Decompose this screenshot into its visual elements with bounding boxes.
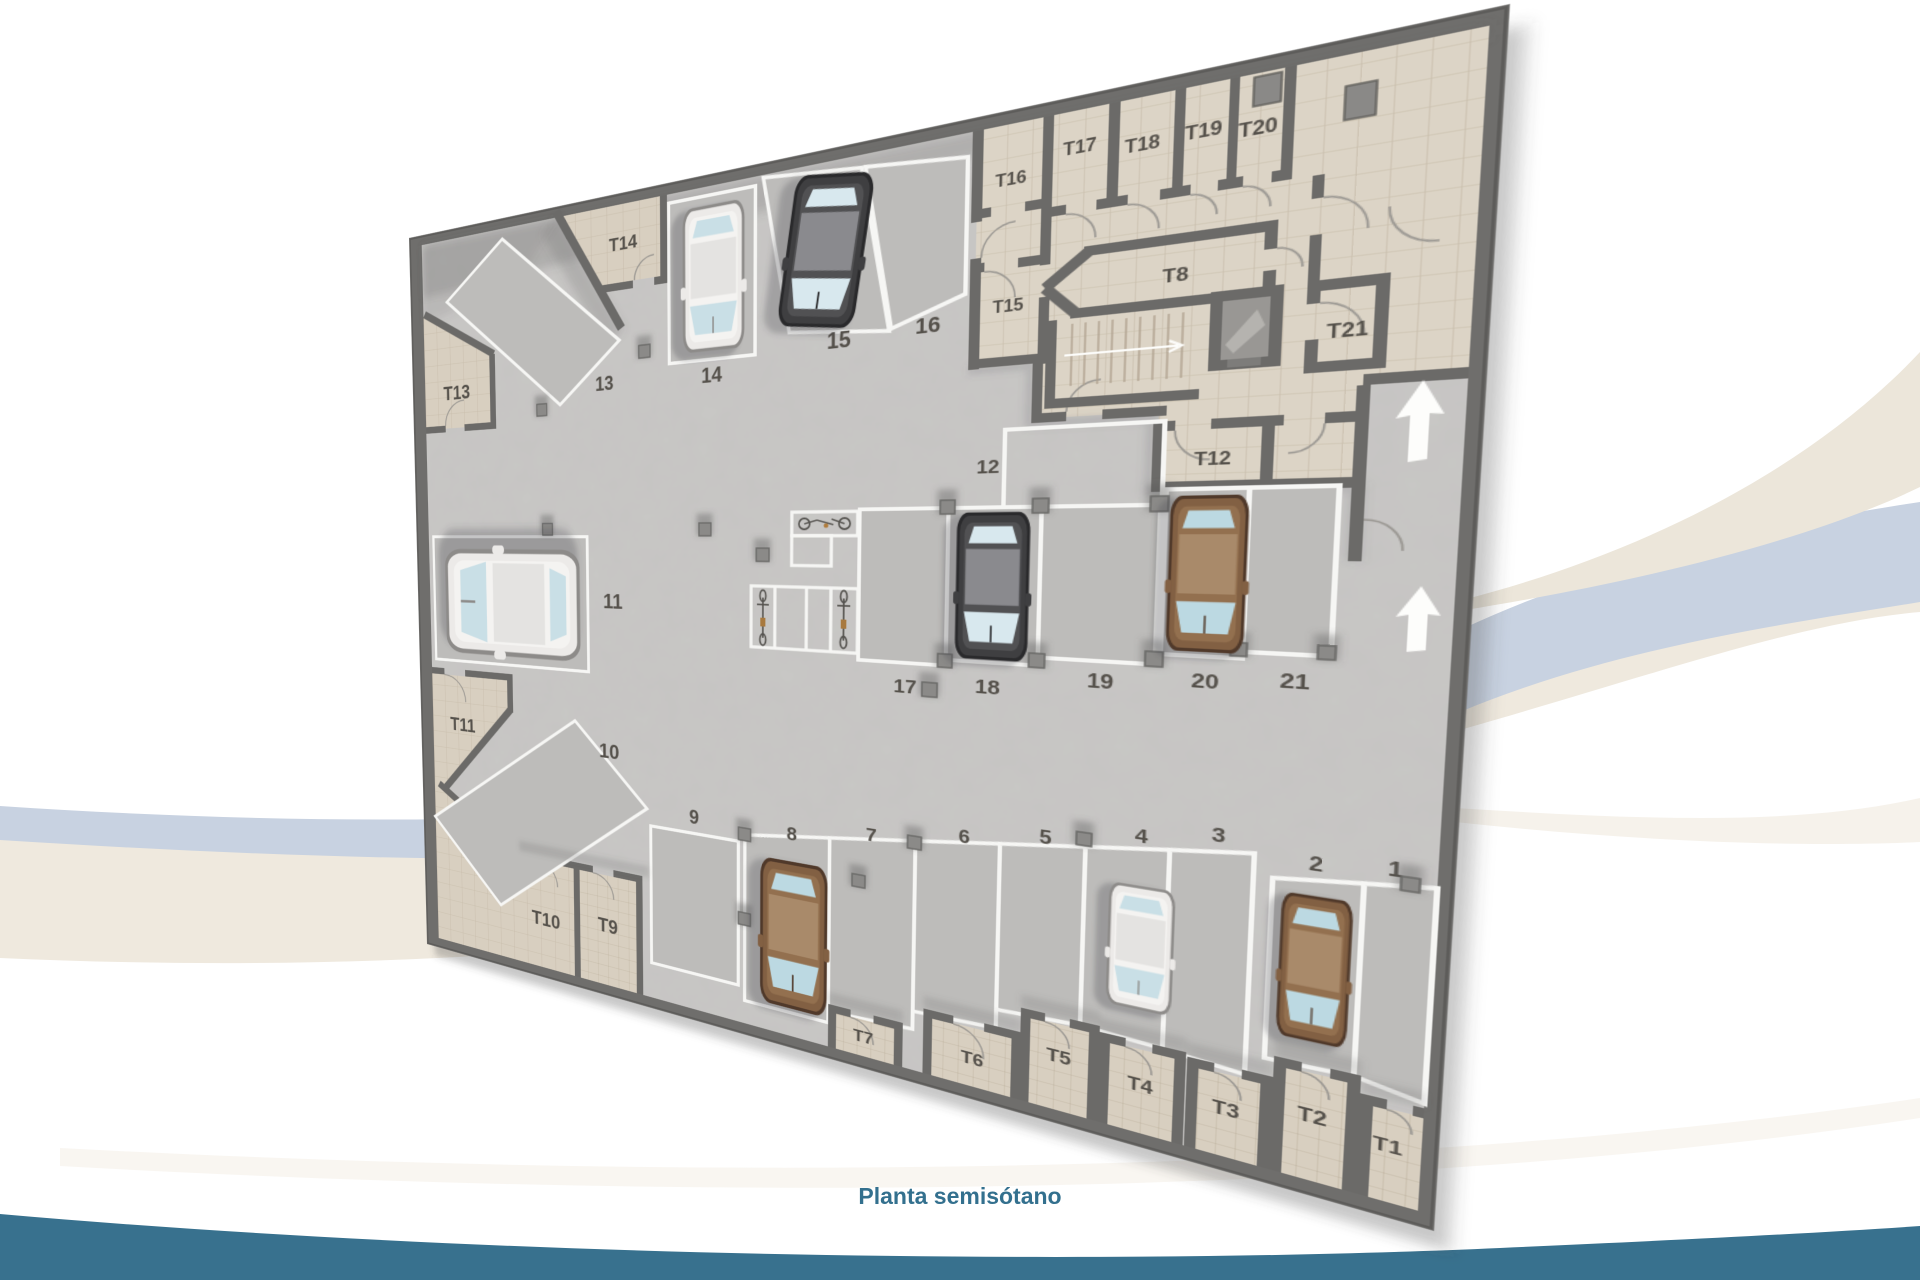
svg-text:5: 5 xyxy=(1039,826,1052,850)
svg-text:19: 19 xyxy=(1086,669,1113,694)
svg-text:T11: T11 xyxy=(450,714,475,738)
svg-text:8: 8 xyxy=(787,822,798,846)
svg-text:18: 18 xyxy=(975,674,1001,699)
svg-text:14: 14 xyxy=(701,364,722,388)
svg-text:11: 11 xyxy=(603,590,623,614)
svg-text:3: 3 xyxy=(1211,822,1227,848)
svg-text:13: 13 xyxy=(595,374,614,397)
svg-text:16: 16 xyxy=(915,310,941,338)
svg-text:7: 7 xyxy=(866,823,877,846)
svg-text:T13: T13 xyxy=(443,381,470,405)
svg-text:4: 4 xyxy=(1134,824,1149,849)
svg-text:9: 9 xyxy=(689,807,699,829)
svg-text:21: 21 xyxy=(1279,668,1311,695)
svg-text:10: 10 xyxy=(599,740,619,765)
svg-text:2: 2 xyxy=(1308,854,1324,877)
svg-text:17: 17 xyxy=(893,674,916,698)
svg-text:T8: T8 xyxy=(1162,264,1189,289)
svg-text:20: 20 xyxy=(1191,668,1221,694)
svg-text:12: 12 xyxy=(976,455,1000,478)
svg-text:T12: T12 xyxy=(1194,450,1233,471)
svg-text:T21: T21 xyxy=(1326,319,1370,344)
svg-text:6: 6 xyxy=(958,826,970,849)
svg-text:T15: T15 xyxy=(992,296,1024,318)
